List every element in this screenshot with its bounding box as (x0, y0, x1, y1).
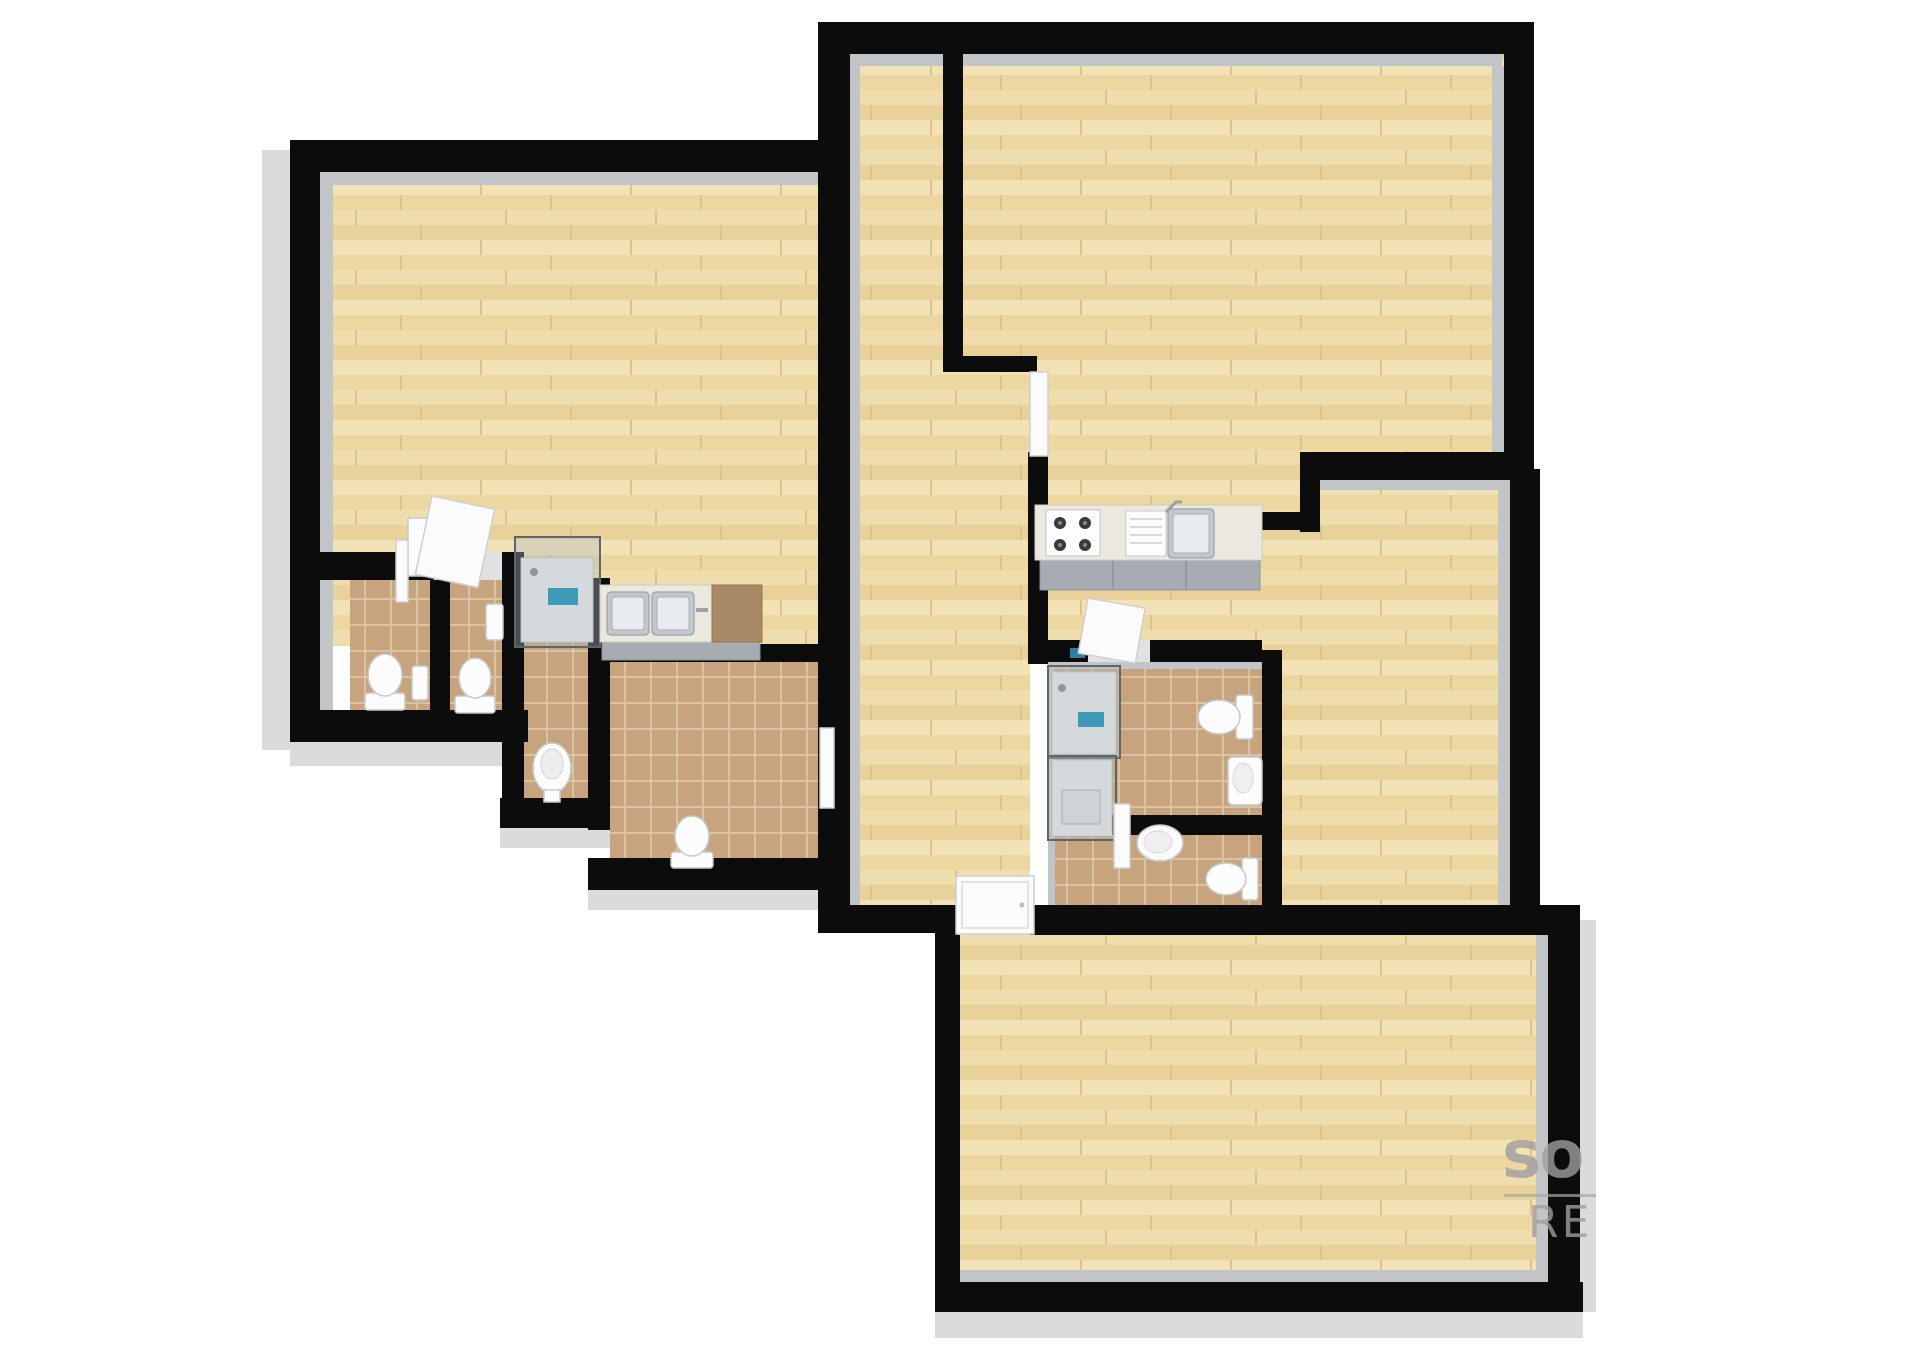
wall-top (818, 22, 1534, 54)
floor-hallway-top (850, 54, 943, 912)
watermark-logo: so RE (1502, 1122, 1902, 1245)
watermark-line-2: RE (1528, 1201, 1902, 1245)
shower-mat (548, 588, 578, 605)
wall-bathroom-right-bottom (588, 858, 840, 890)
wc1-door (396, 540, 408, 602)
counter-faucet (696, 608, 708, 612)
wall-jog-horizontal (943, 356, 1037, 372)
wall-bottom-room-north (1028, 905, 1564, 935)
kitchen-counter (1035, 502, 1262, 590)
shower-cabin-left (515, 537, 600, 647)
floor-bottom-room (960, 935, 1552, 1284)
wall-left-unit-bottom-west (290, 710, 528, 742)
counter-wood-section (712, 585, 762, 642)
wall-middle-room-east (1510, 469, 1540, 915)
door-handle (1020, 903, 1025, 908)
bathroom-lower-door (1114, 804, 1130, 868)
floor-plan-render: so RE (0, 0, 1920, 1357)
toilet-wc1 (365, 654, 405, 710)
wall-hall-living-divider (943, 54, 963, 356)
wall-bottom-room-south (935, 1282, 1583, 1312)
floor-middle-room (1280, 478, 1512, 907)
wall-bottom-room-west (935, 905, 960, 1307)
shower-cabin-upper (1048, 666, 1120, 758)
wall-left-unit-top (290, 140, 830, 172)
wall-bath-divider (1112, 815, 1262, 835)
double-sink-counter (600, 585, 762, 660)
wall-bath-north-east (1150, 640, 1262, 662)
floor-bathroom-right (610, 662, 818, 858)
bathroom-upper-door (1078, 598, 1145, 663)
entrance-door (956, 876, 1034, 934)
sink-wc2 (486, 604, 503, 640)
wall-living-east (1504, 22, 1534, 469)
sink-drainer (1126, 511, 1166, 556)
wall-bottom-room-east (1548, 905, 1580, 1312)
watermark-line-1: so (1502, 1122, 1902, 1188)
wall-middle-room-north (1300, 452, 1534, 480)
shower-cabin-lower (1048, 756, 1116, 840)
gas-hob (1046, 510, 1100, 556)
sink-lower (1137, 825, 1183, 861)
sink-wc1 (412, 666, 428, 700)
kitchen-door (1030, 372, 1048, 456)
wall-left-unit-left (290, 140, 320, 742)
hall-side-door (820, 728, 834, 808)
wall-counter-end (1262, 512, 1320, 530)
wall-bath-east (1262, 650, 1282, 932)
